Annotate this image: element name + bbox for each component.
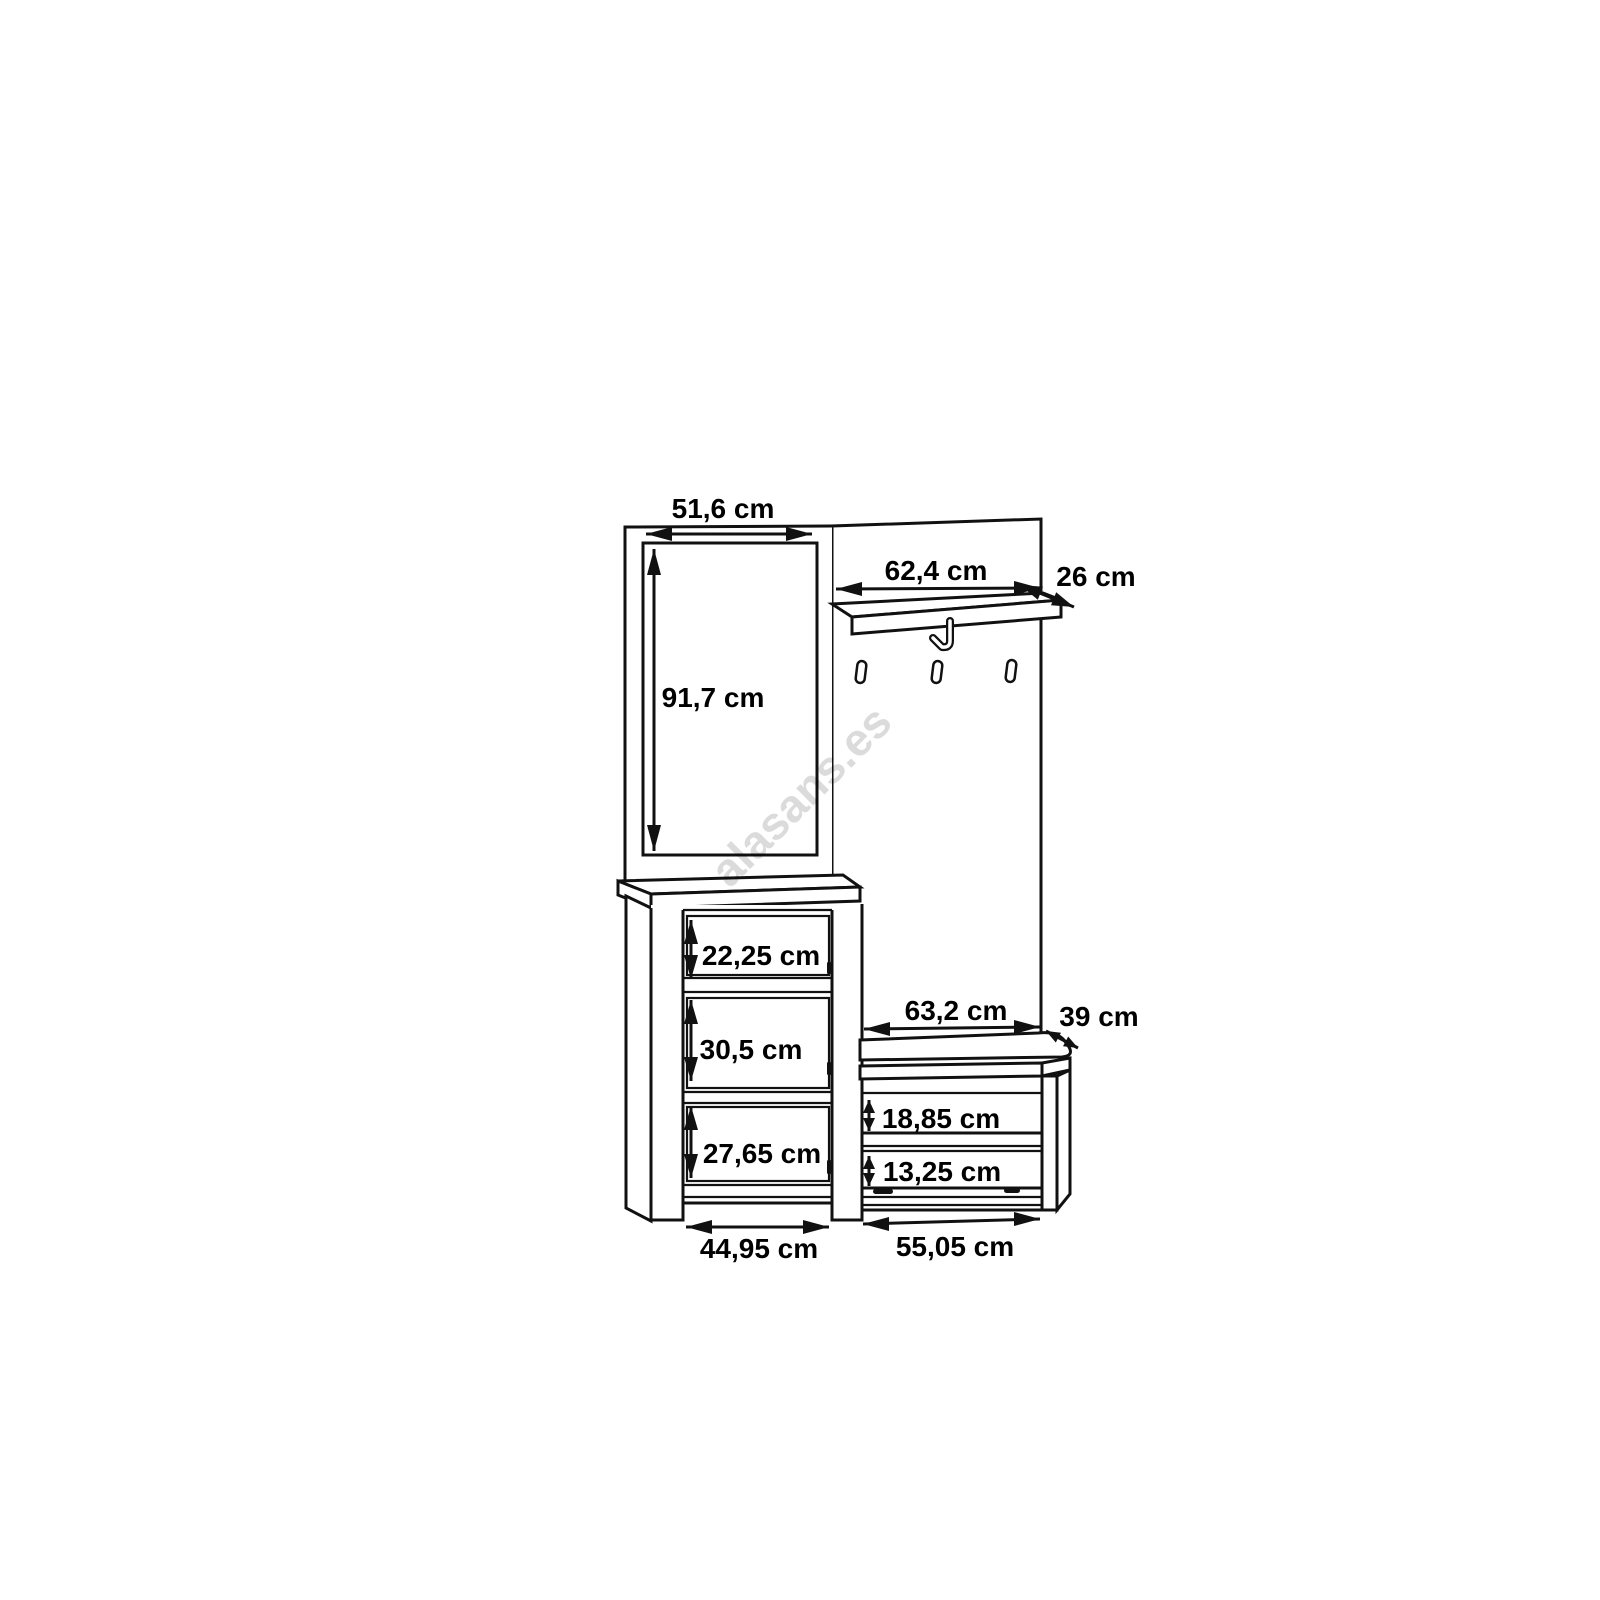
coat-peg-icon — [1005, 660, 1017, 683]
dim-cabinet-top-compartment: 22,25 cm — [702, 940, 820, 971]
dim-bench-seat-width: 63,2 cm — [905, 995, 1008, 1026]
dim-cabinet-bottom-width: 44,95 cm — [700, 1233, 818, 1264]
dim-coat-shelf-width: 62,4 cm — [885, 555, 988, 586]
dim-bench-upper-shelf: 18,85 cm — [882, 1103, 1000, 1134]
dim-mirror-height: 91,7 cm — [662, 682, 765, 713]
dim-cabinet-bottom-compartment: 27,65 cm — [703, 1138, 821, 1169]
coat-peg-icon — [855, 661, 867, 684]
dim-bench-bottom-width: 55,05 cm — [896, 1231, 1014, 1262]
dim-bench-seat-depth: 39 cm — [1059, 1001, 1138, 1032]
coat-peg-icon — [931, 661, 943, 684]
dim-bench-lower-shelf: 13,25 cm — [883, 1156, 1001, 1187]
dim-cabinet-middle-compartment: 30,5 cm — [700, 1034, 803, 1065]
dim-coat-shelf-depth: 26 cm — [1056, 561, 1135, 592]
furniture-dimension-diagram: 51,6 cm 91,7 cm 62,4 cm 26 cm 22,25 cm 3… — [0, 0, 1600, 1600]
dim-mirror-width: 51,6 cm — [672, 493, 775, 524]
